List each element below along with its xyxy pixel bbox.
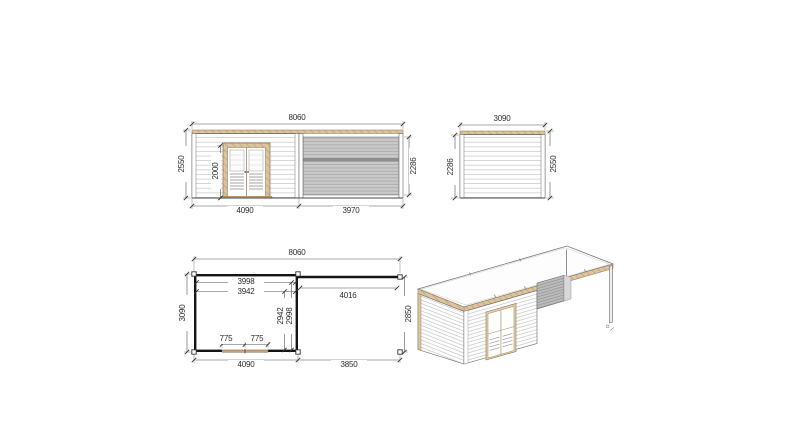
dim-plan-door-leaf-a: 775	[215, 334, 237, 344]
side-elevation-view	[451, 122, 554, 200]
drawing-linework	[0, 0, 794, 446]
front-double-door	[221, 143, 272, 198]
dim-plan-door-leaf-b: 775	[246, 334, 268, 344]
dim-plan-inner-width-b: 3942	[228, 287, 264, 297]
canopy-post	[399, 134, 403, 199]
floor-plan-view	[184, 256, 408, 363]
dim-side-back-height: 2550	[549, 146, 559, 182]
dim-plan-canopy-depth: 2850	[404, 296, 414, 332]
dim-plan-inner-width-a: 3998	[228, 277, 264, 287]
dim-plan-cabin-width: 4090	[228, 360, 264, 370]
door-handle-icon	[247, 171, 249, 173]
dim-plan-total-width: 8060	[279, 248, 315, 258]
dim-front-total-width: 8060	[279, 113, 315, 123]
dim-plan-canopy-width: 3850	[331, 360, 367, 370]
dim-side-front-height: 2286	[446, 149, 456, 185]
dim-front-door-height: 2000	[211, 153, 221, 189]
door-handle-icon	[244, 171, 246, 173]
dim-plan-canopy-span: 4016	[330, 291, 366, 301]
dim-plan-inner-depth-b: 2998	[285, 298, 295, 334]
dim-plan-depth: 3090	[178, 295, 188, 331]
dim-side-width: 3090	[484, 114, 520, 124]
isometric-view	[418, 246, 614, 364]
dim-front-cabin-width: 4090	[227, 206, 263, 216]
iso-double-door	[486, 303, 516, 360]
technical-drawing-sheet: 8060 2550 2000 2286 4090 3970 3090 2286 …	[0, 0, 794, 446]
front-roof-fascia	[192, 130, 403, 134]
side-wall	[460, 135, 545, 199]
dim-front-canopy-height: 2286	[409, 148, 419, 184]
front-canopy-rear-wall	[303, 137, 399, 195]
dim-front-height: 2550	[177, 146, 187, 182]
dim-front-canopy-width: 3970	[333, 206, 369, 216]
iso-canopy-post	[610, 266, 613, 324]
canopy-post	[299, 134, 303, 199]
side-roof-fascia	[460, 131, 545, 135]
